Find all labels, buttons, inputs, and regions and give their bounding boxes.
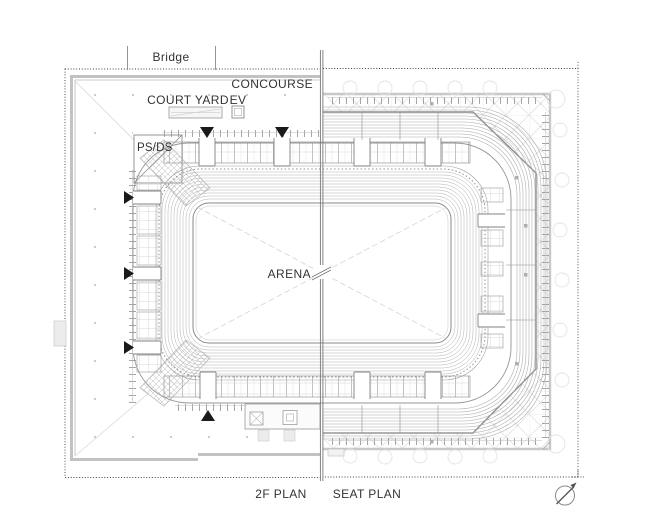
north-arrow-icon bbox=[556, 483, 577, 506]
ev-shaft bbox=[232, 106, 244, 118]
bridge-stub-left bbox=[54, 321, 66, 346]
walkway-ticks-left bbox=[129, 170, 136, 403]
entry-arrow-up-icon bbox=[201, 410, 215, 421]
wall-bottom bbox=[70, 455, 320, 460]
walkway-ticks-bottom bbox=[175, 404, 247, 411]
ev-label: EV bbox=[230, 93, 247, 107]
truss-ticks-top bbox=[328, 97, 542, 104]
equipment-box-core bbox=[283, 411, 297, 425]
bridge-label: Bridge bbox=[152, 50, 189, 64]
walkway-ticks-top bbox=[162, 130, 320, 137]
floor-plan-sheet: Bridge CONCOURSE COURT YARD EV PS/DS ARE… bbox=[0, 0, 650, 522]
left-plan-caption: 2F PLAN bbox=[255, 487, 307, 501]
service-pad-1 bbox=[258, 430, 269, 441]
arena-plan-drawing: Bridge CONCOURSE COURT YARD EV PS/DS ARE… bbox=[0, 0, 650, 522]
court-yard-label: COURT YARD bbox=[147, 93, 229, 107]
service-pad-2 bbox=[284, 430, 295, 441]
psds-label: PS/DS bbox=[137, 142, 173, 154]
right-plan-caption: SEAT PLAN bbox=[333, 487, 402, 501]
concourse-label: CONCOURSE bbox=[231, 77, 313, 91]
service-rect bbox=[328, 449, 344, 456]
arena-label: ARENA bbox=[268, 267, 311, 281]
